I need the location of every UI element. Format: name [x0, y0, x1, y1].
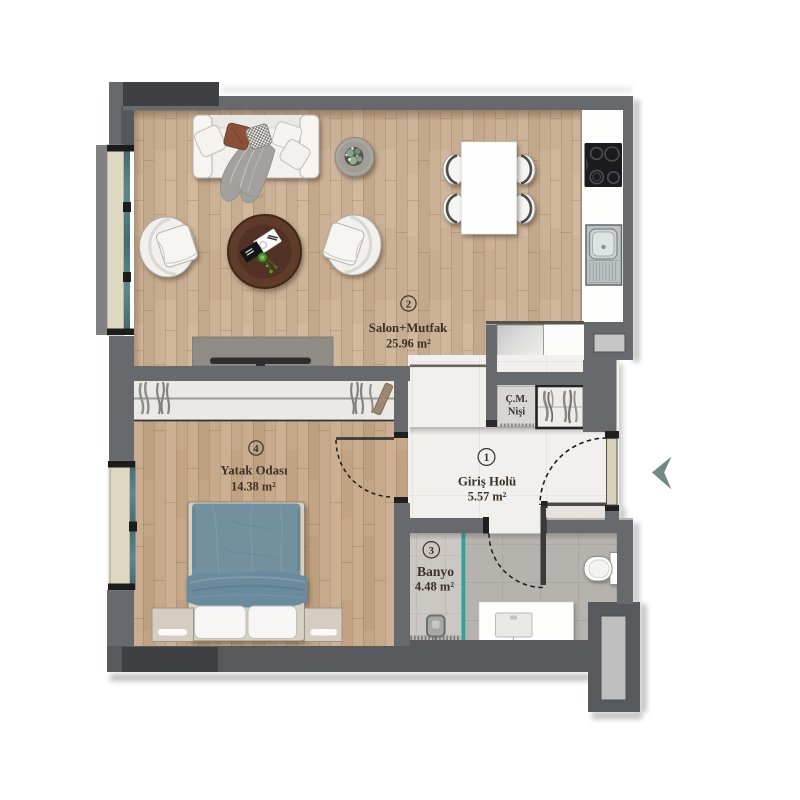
svg-text:2: 2: [406, 299, 411, 310]
svg-text:4.48 m²: 4.48 m²: [415, 580, 454, 594]
svg-text:4: 4: [253, 444, 259, 455]
svg-text:25.96 m²: 25.96 m²: [386, 337, 431, 351]
svg-text:5.57 m²: 5.57 m²: [468, 490, 507, 504]
svg-text:Banyo: Banyo: [417, 564, 454, 579]
svg-text:Yatak Odası: Yatak Odası: [220, 464, 288, 478]
svg-text:Salon+Mutfak: Salon+Mutfak: [369, 321, 448, 335]
svg-text:14.38 m²: 14.38 m²: [231, 480, 276, 494]
svg-text:1: 1: [484, 452, 490, 464]
svg-text:Nişi: Nişi: [508, 407, 525, 418]
svg-text:Giriş Holü: Giriş Holü: [458, 475, 516, 489]
svg-text:Ç.M.: Ç.M.: [505, 394, 528, 405]
svg-text:3: 3: [429, 545, 435, 557]
